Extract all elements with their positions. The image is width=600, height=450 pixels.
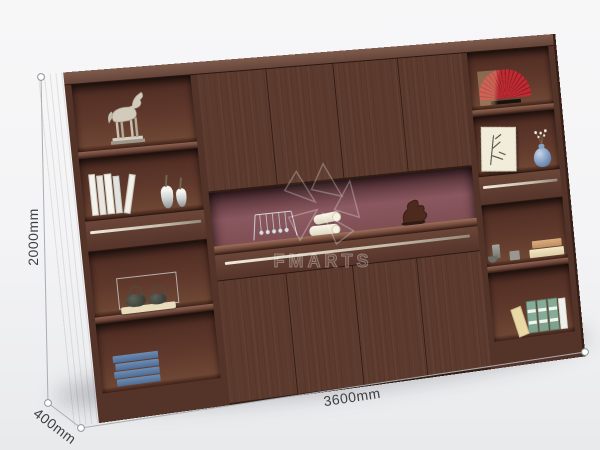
- green-book-set: [516, 296, 568, 334]
- shelf-horse-statue: [71, 75, 197, 152]
- cabinet: [38, 34, 586, 427]
- door-seam: [397, 59, 409, 172]
- cabinet-front: [63, 34, 585, 423]
- tan-book-stack: [528, 238, 564, 258]
- height-dimension-label: 2000mm: [25, 201, 41, 273]
- door-seam: [416, 258, 428, 376]
- center-section: [197, 53, 491, 405]
- red-folding-fan: [477, 67, 532, 106]
- door-seam: [332, 64, 344, 178]
- drawer-handle-strip: [90, 220, 201, 235]
- ceramic-vases: [160, 183, 190, 209]
- shelf-red-fan: [467, 46, 554, 110]
- horse-statue: [95, 88, 155, 146]
- shelf-green-books: [488, 264, 575, 342]
- shelf-blue-books: [96, 310, 221, 393]
- shelf-painting-vase: [473, 110, 560, 177]
- shelf-cups-books: [481, 197, 568, 267]
- blue-book-stack: [112, 351, 160, 388]
- book-band: [140, 352, 149, 360]
- door-seam: [265, 69, 277, 184]
- white-books: [88, 171, 130, 216]
- blue-vase-with-blossoms: [531, 129, 552, 167]
- door-seam: [285, 274, 298, 394]
- product-scene: FMARTS 2000mm 400mm 3600mm: [0, 0, 600, 450]
- bamboo-ink-painting: [481, 127, 517, 172]
- door-seam: [352, 266, 364, 385]
- cabinet-front-body: [64, 46, 583, 423]
- shelf-books-vases: [79, 148, 204, 221]
- gray-cups: [487, 241, 522, 263]
- drawer-handle-strip: [483, 178, 558, 189]
